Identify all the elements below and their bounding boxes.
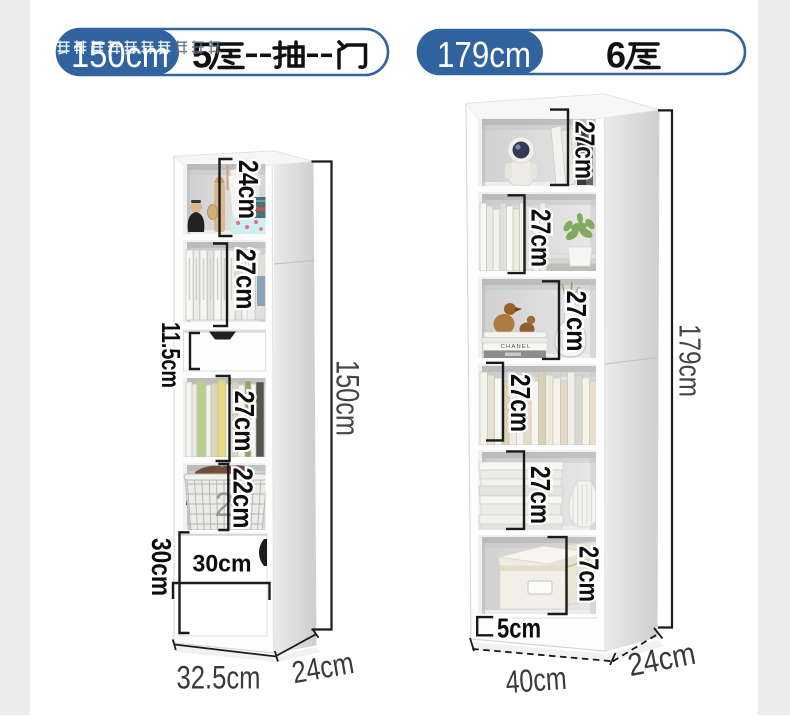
svg-text:5cm: 5cm <box>497 613 541 644</box>
svg-text:27cm: 27cm <box>231 249 262 310</box>
svg-text:27cm: 27cm <box>525 466 556 524</box>
svg-text:27cm: 27cm <box>526 209 557 267</box>
svg-text:179cm: 179cm <box>437 34 531 75</box>
svg-text:27cm: 27cm <box>229 391 260 452</box>
svg-text:27cm: 27cm <box>505 374 536 432</box>
svg-text:24cm: 24cm <box>233 160 264 219</box>
svg-text:150cm: 150cm <box>330 360 366 436</box>
svg-text:6: 6 <box>606 35 626 76</box>
svg-text:22cm: 22cm <box>228 468 259 529</box>
svg-text:27cm: 27cm <box>561 291 592 352</box>
svg-text:32.5cm: 32.5cm <box>177 660 261 696</box>
svg-text:CHANEL: CHANEL <box>501 344 532 350</box>
svg-text:40cm: 40cm <box>504 660 567 700</box>
svg-text:27cm: 27cm <box>570 121 601 179</box>
svg-text:150cm: 150cm <box>71 34 169 75</box>
svg-text:11.5cm: 11.5cm <box>156 322 186 388</box>
svg-text:30cm: 30cm <box>193 551 252 578</box>
svg-text:179cm: 179cm <box>673 324 708 397</box>
svg-text:27cm: 27cm <box>574 546 605 602</box>
